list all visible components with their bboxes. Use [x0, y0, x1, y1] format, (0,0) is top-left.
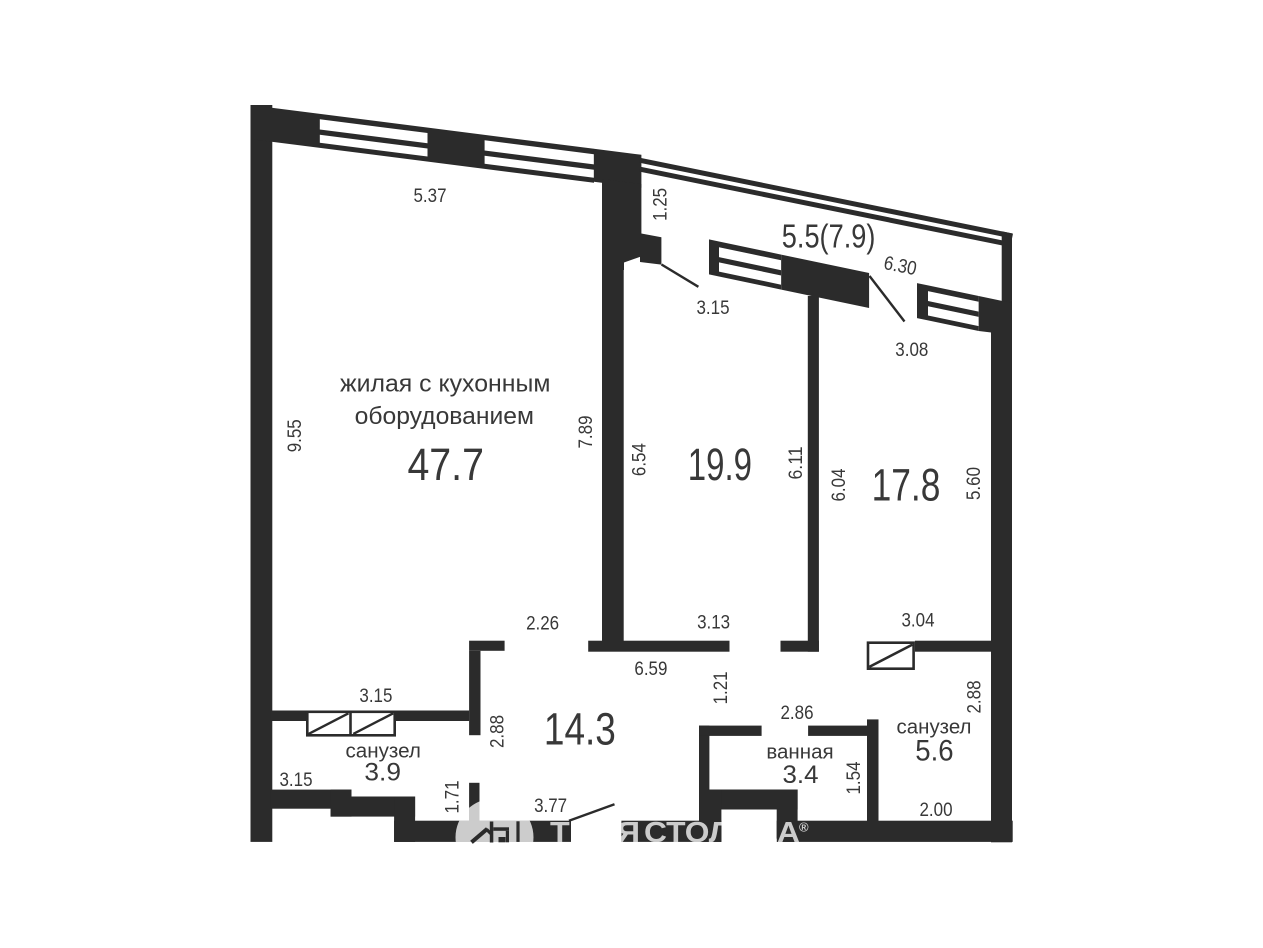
svg-text:3.15: 3.15 — [280, 769, 313, 791]
svg-text:9.55: 9.55 — [284, 419, 306, 452]
svg-text:6.59: 6.59 — [634, 658, 667, 680]
svg-text:2.88: 2.88 — [487, 715, 509, 748]
svg-text:оборудованием: оборудованием — [355, 403, 534, 430]
svg-text:5.60: 5.60 — [963, 467, 985, 500]
svg-text:19.9: 19.9 — [688, 439, 752, 490]
svg-text:2.26: 2.26 — [526, 613, 559, 635]
svg-text:5.6: 5.6 — [915, 735, 953, 768]
svg-text:1.25: 1.25 — [650, 188, 672, 221]
svg-text:3.15: 3.15 — [697, 297, 730, 319]
svg-text:5.37: 5.37 — [414, 185, 447, 207]
svg-text:®: ® — [799, 820, 809, 835]
svg-text:14.3: 14.3 — [544, 703, 616, 754]
svg-text:5.5(7.9): 5.5(7.9) — [782, 218, 876, 255]
svg-text:2.88: 2.88 — [964, 681, 986, 714]
svg-text:1.54: 1.54 — [843, 761, 865, 794]
svg-text:6.54: 6.54 — [629, 443, 651, 476]
svg-text:ТВОЯ: ТВОЯ — [550, 817, 640, 849]
svg-text:47.7: 47.7 — [407, 439, 484, 490]
svg-text:3.15: 3.15 — [359, 685, 392, 707]
svg-text:2.00: 2.00 — [920, 799, 953, 821]
svg-text:17.8: 17.8 — [872, 459, 941, 510]
svg-text:3.08: 3.08 — [895, 339, 928, 361]
svg-text:ванная: ванная — [766, 740, 833, 763]
svg-text:3.4: 3.4 — [783, 761, 819, 789]
svg-text:7.89: 7.89 — [575, 416, 597, 449]
svg-text:3.9: 3.9 — [364, 758, 401, 786]
svg-text:1.71: 1.71 — [442, 781, 464, 814]
svg-text:жилая с кухонным: жилая с кухонным — [340, 371, 550, 398]
svg-text:6.11: 6.11 — [785, 447, 807, 480]
svg-text:СТОЛИЦА: СТОЛИЦА — [644, 817, 800, 849]
svg-text:6.04: 6.04 — [828, 468, 850, 501]
svg-text:3.77: 3.77 — [534, 795, 567, 817]
svg-text:2.86: 2.86 — [781, 702, 814, 724]
svg-text:3.13: 3.13 — [697, 611, 730, 633]
svg-text:3.04: 3.04 — [902, 610, 935, 632]
svg-text:1.21: 1.21 — [710, 671, 732, 704]
